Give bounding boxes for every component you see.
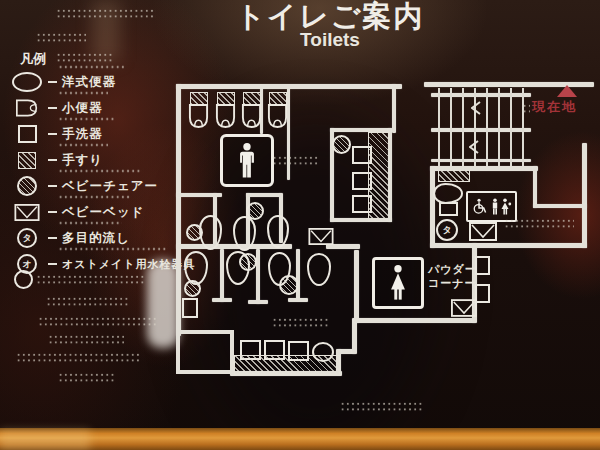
braille-dots — [58, 194, 130, 200]
washbasin-icon — [182, 298, 198, 318]
mens-room-sign — [220, 134, 274, 187]
braille-dots — [58, 116, 114, 122]
stall-wall — [288, 298, 308, 302]
washbasin-icon — [352, 195, 372, 213]
braille-dots — [58, 246, 168, 252]
wall — [176, 84, 181, 336]
current-location-label: 現在地 — [532, 98, 577, 116]
legend-label: 洋式便器 — [62, 74, 116, 91]
braille-dots — [46, 296, 130, 307]
stair-rail — [431, 159, 531, 162]
legend-label: 多目的流し — [62, 230, 130, 247]
sign-title-english: Toilets — [185, 29, 475, 51]
powder-stool — [475, 256, 490, 275]
wall — [354, 250, 359, 323]
braille-dots — [58, 64, 124, 70]
stair-arrow-icon — [469, 140, 479, 154]
urinal-icon — [16, 98, 38, 118]
womens-room-sign — [372, 257, 424, 309]
toilet-guide-sign: トイレご案内 Toilets 凡例 洋式便器 小便器 手洗器 手すり ベビーチェ… — [0, 0, 600, 450]
stair-step — [522, 88, 524, 166]
stall-wall — [212, 298, 232, 302]
powder-stool — [475, 284, 490, 303]
baby-chair-icon — [239, 253, 257, 271]
stair-arrow-icon — [471, 101, 481, 115]
wall — [430, 166, 435, 248]
wheelchair-icon — [472, 198, 487, 215]
braille-dots — [56, 52, 114, 62]
partition-wall — [287, 88, 290, 180]
baby-chair-icon — [186, 224, 203, 241]
powder-corner-label: パウダー — [428, 262, 477, 277]
braille-dots — [58, 372, 116, 383]
legend-label: ベビーチェアー — [62, 178, 158, 195]
legend-dash — [48, 185, 57, 187]
legend-label: 手すり — [62, 152, 103, 169]
closet-room — [176, 330, 234, 374]
stall-wall — [248, 300, 268, 304]
legend-dash — [48, 81, 57, 83]
counter-hatch — [234, 355, 340, 375]
washbasin-icon — [352, 172, 372, 190]
baby-bed-icon — [469, 222, 497, 241]
baby-bed-icon — [14, 204, 40, 221]
urinal-icon — [267, 104, 288, 129]
wall — [582, 143, 587, 248]
stall-wall — [296, 249, 300, 301]
wall — [533, 166, 537, 208]
baby-bed-icon — [308, 228, 334, 245]
legend-label: 手洗器 — [62, 126, 103, 143]
stall-wall — [246, 193, 282, 197]
multipurpose-sink-icon: タ — [17, 228, 37, 248]
baby-chair-icon — [246, 202, 264, 220]
legend-dash — [48, 159, 57, 161]
stair-rail — [431, 93, 531, 97]
braille-dots — [58, 168, 142, 174]
western-toilet-icon — [433, 183, 463, 204]
sign-frame-bottom — [0, 428, 600, 450]
legend-dash — [48, 263, 57, 265]
parent-child-icons — [490, 198, 512, 215]
powder-corner-label: コーナー — [428, 276, 477, 291]
braille-dots — [36, 32, 86, 42]
washbasin-icon — [439, 202, 458, 216]
braille-dots — [272, 317, 330, 327]
wall — [533, 204, 587, 208]
braille-dots — [58, 220, 122, 226]
legend-dash — [48, 107, 57, 109]
legend-label: ベビーベッド — [62, 204, 144, 221]
stair-rail — [431, 128, 531, 132]
mens-pictogram — [235, 142, 259, 180]
braille-dots — [58, 90, 108, 96]
wall — [392, 84, 396, 133]
handrail-hatch — [438, 170, 470, 182]
urinal-icon — [188, 104, 209, 129]
washbasin-icon — [352, 146, 372, 164]
stair-step — [450, 88, 452, 166]
western-toilet-icon — [12, 72, 42, 92]
wall — [430, 243, 587, 248]
stair-step — [438, 88, 440, 166]
legend-heading: 凡例 — [20, 50, 46, 68]
stair-step — [462, 88, 464, 166]
baby-bed-icon — [451, 299, 477, 317]
baby-chair-icon — [17, 176, 37, 196]
braille-dots — [522, 103, 530, 113]
glyph: タ — [442, 226, 451, 235]
urinal-icon — [241, 104, 262, 129]
braille-dots — [272, 155, 318, 166]
legend-dash — [48, 211, 57, 213]
wall — [354, 318, 476, 323]
current-location-marker — [557, 85, 577, 97]
stall-wall — [256, 249, 260, 304]
braille-dots — [504, 218, 574, 230]
baby-chair-icon — [184, 280, 201, 297]
stair-step — [474, 88, 476, 166]
stall-wall — [220, 249, 224, 302]
braille-dots — [58, 142, 108, 148]
western-toilet-icon — [307, 253, 331, 286]
braille-dots — [48, 334, 124, 344]
braille-dots — [36, 274, 144, 286]
stair-step — [486, 88, 488, 166]
stair-step — [510, 88, 512, 166]
baby-chair-icon — [279, 275, 299, 295]
braille-dots — [340, 401, 424, 414]
legend-extra-circle-icon — [14, 270, 33, 289]
womens-pictogram — [386, 264, 410, 302]
glyph: タ — [22, 234, 31, 243]
baby-chair-icon — [332, 135, 351, 154]
braille-dots — [56, 8, 156, 20]
braille-dots — [16, 352, 140, 364]
glyph: オ — [22, 260, 31, 269]
legend-item-ostomate: オ オストメイト用水栓器具 — [10, 252, 196, 276]
wall — [352, 318, 357, 354]
handrail-icon — [18, 152, 36, 169]
legend-label: 小便器 — [62, 100, 103, 117]
urinal-icon — [215, 104, 236, 129]
legend-dash — [48, 237, 57, 239]
stair-step — [498, 88, 500, 166]
washbasin-icon — [18, 125, 37, 143]
legend-dash — [48, 133, 57, 135]
braille-dots — [38, 316, 156, 327]
multipurpose-sink-icon: タ — [436, 219, 458, 241]
